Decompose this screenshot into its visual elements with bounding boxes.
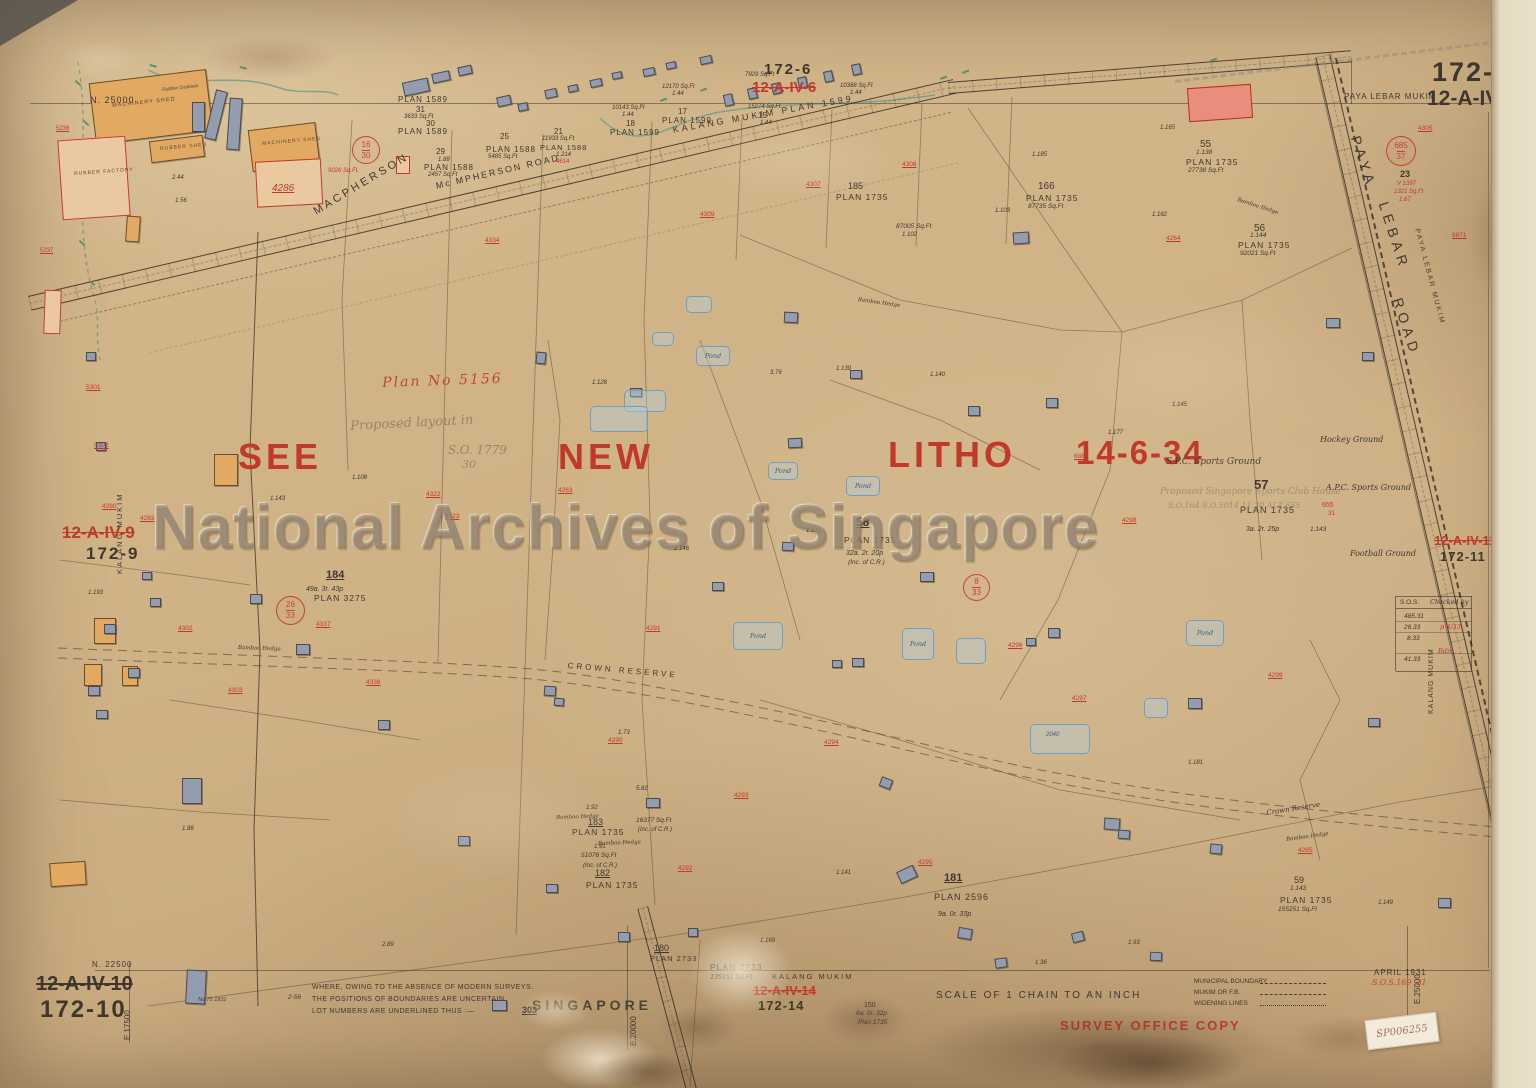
sos-table-row-line bbox=[1396, 621, 1472, 622]
plot-label: PLAN 1589 bbox=[398, 128, 448, 136]
area-number: (Inc. of C.R.) bbox=[638, 827, 672, 833]
pond: Pond bbox=[696, 346, 730, 366]
gray-building bbox=[646, 798, 660, 808]
gray-building bbox=[104, 624, 116, 634]
gray-building bbox=[968, 406, 980, 416]
area-number: 1.56 bbox=[175, 198, 187, 204]
gray-building bbox=[1150, 952, 1162, 962]
grid-line-e20000 bbox=[627, 926, 628, 1050]
lot-number-red: 31 bbox=[1328, 511, 1335, 518]
plot-label: PLAN 2733 bbox=[710, 963, 762, 972]
pond-label: Pond bbox=[775, 467, 791, 475]
grid-label-e17500: E.17500 bbox=[124, 1010, 132, 1040]
note-line-2: THE POSITIONS OF BOUNDARIES ARE UNCERTAI… bbox=[312, 996, 507, 1003]
survey-office-copy-stamp: SURVEY OFFICE COPY bbox=[1060, 1019, 1241, 1033]
area-number: Plan 1735 bbox=[858, 1020, 887, 1027]
plot-label: PLAN 1735 bbox=[836, 193, 888, 202]
area-number: 1.177 bbox=[1108, 430, 1123, 436]
lot-number-red: 4307 bbox=[806, 182, 820, 189]
pond-label: Pond bbox=[855, 482, 871, 490]
plot-label: PLAN 1735 bbox=[586, 881, 638, 890]
lot-number-red: 4292 bbox=[678, 866, 692, 873]
lot-number-red: 4302 bbox=[178, 626, 192, 633]
sos-table-row-line bbox=[1396, 632, 1472, 633]
plot-label: PLAN 1599 bbox=[610, 129, 660, 137]
lot-number-red: 4296 bbox=[1008, 643, 1022, 650]
sports-ground-label: Football Ground bbox=[1350, 550, 1416, 558]
lot-number-red: 4293 bbox=[734, 793, 748, 800]
plot-label: PLAN 1735 bbox=[572, 828, 624, 837]
area-number: 15274 Sq.Ft bbox=[748, 104, 781, 110]
sos-table-row: 41.33 bbox=[1404, 657, 1420, 664]
area-number: 5.82 bbox=[636, 786, 648, 792]
lot-number-red: 4290 bbox=[608, 738, 622, 745]
stamp-top-number: 685 bbox=[1394, 142, 1407, 150]
gray-building bbox=[554, 698, 565, 707]
area-number: 155251 Sq.Ft bbox=[1278, 907, 1317, 914]
lot-number-red: 4286 bbox=[272, 184, 294, 194]
lot-number-red: 4614 bbox=[556, 159, 569, 165]
area-number: 1.88 bbox=[182, 826, 194, 832]
area-number: 2457 Sq.Ft bbox=[428, 172, 457, 178]
area-number: 3a. 2r. 25p bbox=[1246, 526, 1279, 533]
sos-table-row: 485.31 bbox=[1404, 614, 1424, 621]
lot-number-red: 5236 bbox=[56, 126, 69, 132]
lot-number-red: 5301 bbox=[86, 385, 100, 392]
lot-number-red: 655 bbox=[1322, 502, 1334, 509]
date-label: APRIL 1931 bbox=[1374, 969, 1427, 977]
sos-table-header: Checked by bbox=[1430, 599, 1469, 606]
sports-ground-label: S.P.C. Sports Ground bbox=[1166, 458, 1261, 467]
red-circle-stamp: 2633 bbox=[276, 596, 305, 625]
legend-sample-mukim bbox=[1260, 994, 1326, 995]
lot-number-red: 4308 bbox=[902, 162, 916, 169]
area-number: 1.214 bbox=[556, 152, 571, 158]
stamp-top-number: 26 bbox=[286, 601, 295, 609]
orange-building bbox=[49, 861, 87, 887]
area-number: 87735 Sq.Ft bbox=[1028, 204, 1063, 211]
plot-label: PLAN 1589 bbox=[398, 96, 448, 104]
area-number: 1.140 bbox=[930, 372, 945, 378]
plot-number: 25 bbox=[500, 133, 509, 141]
plot-number: 181 bbox=[944, 873, 962, 884]
plot-number: 29 bbox=[436, 148, 445, 156]
mukim-label: KALANG MUKIM bbox=[772, 973, 854, 981]
gray-building bbox=[546, 884, 558, 893]
gray-building bbox=[192, 102, 205, 132]
lot-number-red: 6871 bbox=[1452, 233, 1466, 240]
area-number: 27738 Sq.Ft bbox=[1188, 168, 1223, 175]
sheet-ref-12-a-iv-11: 12-A-IV-11 bbox=[1434, 534, 1496, 548]
building-note: No 75 1931 bbox=[198, 998, 226, 1004]
area-number: 2.89 bbox=[382, 942, 394, 948]
legend-widening-lines: WIDENING LINES bbox=[1194, 1001, 1248, 1008]
area-number: 1.108 bbox=[352, 475, 367, 481]
area-number: 1.93 bbox=[1128, 940, 1140, 946]
gray-building bbox=[1013, 231, 1030, 244]
area-number: 1.44 bbox=[760, 120, 772, 126]
sos-table-border bbox=[1396, 608, 1472, 609]
scan-edge-right bbox=[1491, 0, 1536, 1088]
gray-building bbox=[784, 312, 799, 324]
gray-building bbox=[142, 572, 152, 580]
sos-table-row: 26.33 bbox=[1404, 625, 1420, 632]
lot-note-red: V 1397 bbox=[1397, 181, 1416, 187]
area-number: 7929 Sq.Ft bbox=[745, 72, 774, 78]
stamp-bottom-number: 33 bbox=[286, 610, 295, 620]
scale-label: SCALE OF 1 CHAIN TO AN INCH bbox=[936, 991, 1141, 1001]
gray-building bbox=[1046, 398, 1058, 408]
area-number: 1.141 bbox=[836, 870, 851, 876]
area-number: 1.138 bbox=[1196, 150, 1212, 157]
area-number: 87005 Sq.Ft bbox=[896, 224, 931, 231]
area-number: 1.185 bbox=[1032, 152, 1047, 158]
pencil-note: S.O.164 S.O.5014 11.30 ALT 655 bbox=[1168, 502, 1301, 510]
area-number: 1.139 bbox=[836, 366, 851, 372]
pond: Pond bbox=[733, 622, 783, 650]
sheet-ref-12-a-iv-6: 12-A-IV-6 bbox=[752, 80, 816, 96]
gray-building bbox=[1368, 718, 1380, 727]
lot-number-red: 4280 bbox=[102, 504, 116, 511]
pond-number: 2040 bbox=[1046, 732, 1059, 738]
lot-number-red: 4303 bbox=[228, 688, 242, 695]
gray-building bbox=[1118, 830, 1131, 840]
plot-number: 180 bbox=[654, 944, 669, 953]
plot-label: PLAN 1735 bbox=[1280, 896, 1332, 905]
orange-building bbox=[214, 454, 238, 486]
pond-label: Pond bbox=[750, 632, 766, 640]
area-number: 1.91 bbox=[594, 844, 606, 850]
pond: Pond bbox=[902, 628, 934, 660]
orange-building bbox=[84, 664, 102, 686]
plot-number: 150 bbox=[864, 1002, 876, 1009]
sos-table-note-red: p 4/33 bbox=[1440, 624, 1461, 631]
area-number: 1.165 bbox=[1160, 125, 1175, 131]
area-number: 1.181 bbox=[1188, 760, 1203, 766]
area-number: 1.44 bbox=[850, 90, 862, 96]
plot-number: 166 bbox=[1038, 182, 1055, 192]
lot-number-red: 4291 bbox=[646, 626, 660, 633]
gray-building bbox=[618, 932, 630, 942]
lot-number-red: 4294 bbox=[824, 740, 838, 747]
see-new-litho-new: NEW bbox=[558, 438, 654, 475]
gray-building bbox=[852, 658, 864, 667]
gray-building bbox=[994, 957, 1007, 969]
pond bbox=[956, 638, 986, 664]
area-number: 92021 Sq.Ft bbox=[1240, 251, 1275, 258]
pencil-note: 30 bbox=[462, 459, 476, 470]
stamp-bottom-number: 37 bbox=[1397, 151, 1406, 161]
note-line-3: LOT NUMBERS ARE UNDERLINED THUS :— bbox=[312, 1008, 475, 1015]
sheet-ref-172-10-bl: 172-10 bbox=[40, 998, 127, 1023]
area-number: 51076 Sq.Ft bbox=[581, 853, 616, 860]
area-number: 11933 Sq.Ft bbox=[542, 136, 574, 142]
see-new-litho-litho: LITHO bbox=[888, 436, 1016, 473]
plot-label: PLAN 3275 bbox=[314, 594, 366, 603]
lot-number-red: 4285 bbox=[1298, 848, 1312, 855]
legend-municipal-boundary: MUNICIPAL BOUNDARY bbox=[1194, 979, 1267, 986]
gray-building bbox=[150, 598, 161, 607]
area-number: 1.144 bbox=[1250, 233, 1266, 240]
lot-number-red: 5237 bbox=[40, 248, 53, 254]
area-number: 9a. 0r. 33p bbox=[938, 911, 971, 918]
plot-number: 59 bbox=[1294, 876, 1304, 885]
gray-building bbox=[182, 778, 202, 804]
sheet-ref-12-a-iv-10-bl: 12-A-IV-10 bbox=[36, 974, 133, 995]
grid-label-n22500: N. 22500 bbox=[92, 961, 132, 969]
area-number: 1.149 bbox=[1378, 900, 1393, 906]
gray-building bbox=[250, 594, 262, 604]
redline-building bbox=[57, 136, 130, 221]
lot-note-red: 1.67 bbox=[1399, 197, 1411, 203]
gray-building bbox=[1188, 698, 1202, 709]
plot-number: 183 bbox=[588, 818, 603, 827]
plot-number: 182 bbox=[595, 869, 610, 878]
gray-building bbox=[128, 668, 140, 678]
gray-building bbox=[96, 710, 108, 719]
mukim-label-vertical: KALANG MUKIM bbox=[116, 492, 124, 574]
gray-building bbox=[1026, 638, 1036, 646]
legend-mukim-or-fb: MUKIM OR F.B. bbox=[1194, 990, 1240, 997]
pond: Pond bbox=[1186, 620, 1224, 646]
gray-building bbox=[712, 582, 724, 591]
pond bbox=[652, 332, 674, 346]
archives-watermark: National Archives of Singapore bbox=[152, 492, 1100, 563]
pond-label: Pond bbox=[1197, 629, 1213, 637]
area-number: 1.145 bbox=[1172, 402, 1187, 408]
plot-label: PLAN 2596 bbox=[934, 893, 989, 902]
orange-building bbox=[125, 216, 141, 243]
area-number: 1.92 bbox=[586, 805, 598, 811]
area-number: 10388 Sq.Ft bbox=[840, 83, 873, 89]
note-ref: 2-56 bbox=[288, 995, 301, 1002]
sos-table-row: 8.33 bbox=[1407, 636, 1420, 643]
red-circle-stamp: 1630 bbox=[352, 136, 380, 164]
area-number: 1.44 bbox=[622, 112, 634, 118]
pond-label: Pond bbox=[705, 352, 721, 360]
sos-ref-red: S.O.S.169 .31 bbox=[1372, 979, 1427, 987]
survey-map-sheet: PondPondPondPondPondPond172-1012-A-IV-10… bbox=[0, 0, 1536, 1088]
pond bbox=[686, 296, 712, 313]
area-number: 2.44 bbox=[172, 175, 184, 181]
lot-note-red: 1321 Sq.Ft bbox=[1394, 189, 1423, 195]
pencil-note: S.O. 1779 bbox=[448, 444, 507, 456]
lot-number-red: 4295 bbox=[918, 860, 932, 867]
stamp-bottom-number: 33 bbox=[972, 587, 981, 597]
gray-building bbox=[458, 836, 470, 846]
plot-label: PLAN 1599 bbox=[662, 117, 712, 125]
grid-line-n22500 bbox=[95, 970, 1490, 971]
lot-number-red: 4334 bbox=[485, 238, 499, 245]
red-circle-stamp: 833 bbox=[963, 574, 990, 601]
plot-label: PLAN 2733 bbox=[650, 955, 697, 963]
lot-number-red: 4264 bbox=[1166, 236, 1180, 243]
stamp-top-number: 8 bbox=[974, 578, 978, 586]
gray-building bbox=[957, 927, 973, 940]
area-note-red: 9026 Sq.Ft. bbox=[328, 168, 359, 174]
area-number: 3.76 bbox=[770, 370, 782, 376]
area-number: 1.103 bbox=[995, 208, 1010, 214]
red-circle-stamp: 68537 bbox=[1386, 136, 1416, 166]
gray-building bbox=[1210, 843, 1223, 854]
gray-building bbox=[832, 660, 842, 668]
see-new-litho-see: SEE bbox=[238, 438, 322, 475]
mukim-label: PAYA LEBAR MUKIM bbox=[1344, 93, 1436, 101]
area-number: 10143 Sq.Ft bbox=[612, 105, 645, 111]
area-number: 1.162 bbox=[1152, 212, 1167, 218]
area-number: 1.73 bbox=[618, 730, 630, 736]
area-number: 1.169 bbox=[760, 938, 775, 944]
plot-label: PLAN 1588 bbox=[540, 144, 587, 152]
lot-number-red: 4309 bbox=[700, 212, 714, 219]
area-number: 1.44 bbox=[672, 91, 684, 97]
sos-table-note-red: Rdn. bbox=[1438, 648, 1453, 655]
gray-building bbox=[688, 928, 698, 937]
gray-building bbox=[296, 644, 310, 655]
area-number: 5485 Sq.Ft bbox=[488, 154, 517, 160]
pond: Pond bbox=[768, 462, 798, 480]
gray-building bbox=[1438, 898, 1451, 908]
reference-sticker-text: SP006255 bbox=[1376, 1022, 1429, 1039]
note-line-1: WHERE, OWING TO THE ABSENCE OF MODERN SU… bbox=[312, 984, 534, 991]
plot-label: PLAN 1735 bbox=[1026, 194, 1078, 203]
area-number: 1.143 bbox=[1310, 527, 1326, 534]
pond bbox=[1030, 724, 1090, 754]
gray-building bbox=[1326, 318, 1340, 328]
redfill-building bbox=[1187, 84, 1253, 122]
lot-number-red: 4305 bbox=[1418, 126, 1432, 133]
pond bbox=[1144, 698, 1168, 718]
lot-number-red: 5302 bbox=[94, 443, 108, 450]
sheet-ref-172-11: 172-11 bbox=[1440, 550, 1486, 564]
gray-building bbox=[1362, 352, 1374, 361]
sos-table-border bbox=[1395, 596, 1396, 671]
gray-building bbox=[535, 352, 546, 365]
mukim-label-vertical: KALANG MUKIM bbox=[1428, 648, 1435, 714]
plot-label: PLAN 1735 bbox=[1238, 241, 1290, 250]
grid-label-e20000: E.20000 bbox=[630, 1016, 638, 1046]
gray-building bbox=[920, 572, 934, 582]
lot-number-red: 4298 bbox=[1122, 518, 1136, 525]
gray-building bbox=[544, 686, 557, 697]
gray-building bbox=[788, 438, 803, 449]
sheet-ref-172-14: 172-14 bbox=[758, 999, 804, 1013]
singapore-label: SINGAPORE bbox=[532, 998, 652, 1013]
redline-building bbox=[43, 290, 62, 335]
lot-number-red: 6880 bbox=[1074, 454, 1088, 461]
plot-number: 23 bbox=[1400, 170, 1410, 179]
gray-building bbox=[850, 370, 862, 379]
sos-table-border bbox=[1471, 596, 1472, 671]
area-number: 135151 Sq.Ft bbox=[710, 974, 752, 981]
area-number: 16377 Sq.Ft bbox=[636, 818, 671, 825]
area-number: 1.126 bbox=[592, 380, 607, 386]
pond-label: Pond bbox=[910, 640, 926, 648]
legend-sample-municipal bbox=[1260, 983, 1326, 984]
sos-table-header: S.O.S. bbox=[1400, 600, 1419, 607]
plot-number: 185 bbox=[848, 182, 863, 191]
plot-number: 184 bbox=[326, 570, 344, 581]
stamp-top-number: 16 bbox=[362, 141, 371, 149]
gray-building bbox=[378, 720, 390, 730]
lot-number-red: 4297 bbox=[1072, 696, 1086, 703]
pencil-note: Proposed Singapore Sports Club House bbox=[1160, 488, 1341, 497]
stamp-bottom-number: 30 bbox=[362, 150, 371, 160]
area-number: 1.143 bbox=[1290, 886, 1306, 893]
sheet-ref-172-9: 172-9 bbox=[86, 545, 139, 563]
legend-sample-widening bbox=[1260, 1005, 1326, 1006]
sheet-ref-12-a-iv-14: 12-A-IV-14 bbox=[753, 984, 816, 998]
area-number: 1.102 bbox=[902, 232, 917, 238]
area-number: 6a. 0r. 32p bbox=[856, 1011, 887, 1018]
gray-building bbox=[86, 352, 96, 361]
area-number: 1.36 bbox=[1035, 960, 1047, 966]
pond bbox=[590, 406, 648, 432]
gray-building bbox=[88, 686, 100, 696]
plot-label: PLAN 1735 bbox=[1186, 158, 1238, 167]
lot-number-red: 4299 bbox=[1268, 673, 1282, 680]
lot-number-red: 4338 bbox=[366, 680, 380, 687]
gray-building bbox=[1048, 628, 1060, 638]
sports-ground-label: Hockey Ground bbox=[1320, 436, 1383, 444]
area-number: 1.193 bbox=[88, 590, 103, 596]
area-number: 12170 Sq.Ft bbox=[662, 84, 695, 90]
lot-number-red: 4337 bbox=[316, 622, 330, 629]
